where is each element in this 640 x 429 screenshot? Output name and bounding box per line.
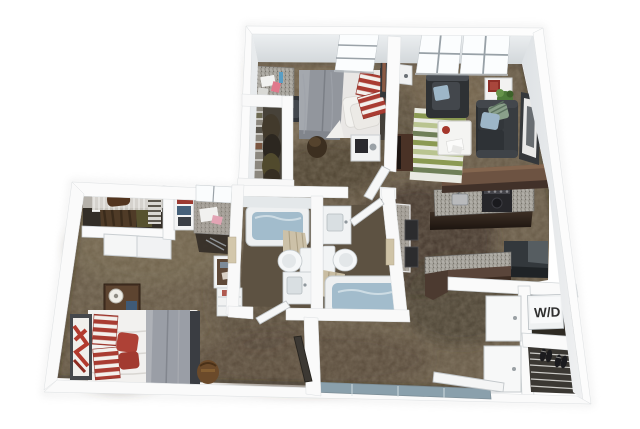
svg-text:W/D: W/D bbox=[534, 304, 561, 320]
